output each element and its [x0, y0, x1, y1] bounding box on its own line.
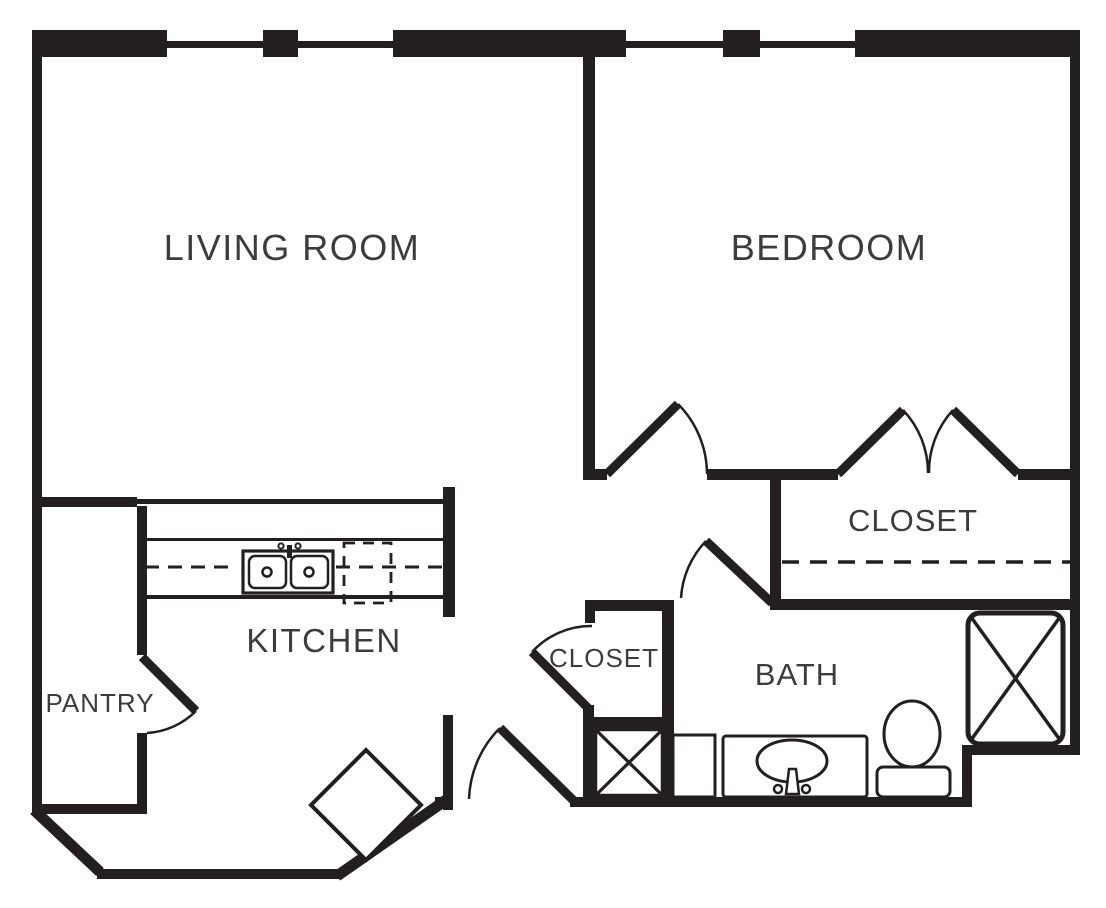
bath-label: BATH — [755, 657, 839, 692]
closet-double-door — [838, 410, 1018, 474]
entry-door-swing — [469, 728, 500, 799]
bedroom-south-wall — [707, 469, 838, 480]
left-wall — [32, 30, 42, 814]
top-wall-block — [32, 30, 167, 57]
counter-end-wall — [443, 487, 455, 617]
bay-diagonal-left — [34, 810, 100, 872]
floor-plan-page: LIVING ROOM BEDROOM CLOSET CLOSET KITCHE… — [0, 0, 1106, 908]
top-wall-block — [855, 30, 1080, 57]
living-bedroom-divider — [583, 57, 595, 469]
closet-door-right-swing — [929, 410, 953, 473]
entry-door-leaf — [500, 728, 574, 801]
window-icon — [167, 41, 263, 48]
utility-xbox-icon — [595, 729, 663, 796]
bath-counter — [673, 735, 715, 797]
kitchen-sink-icon — [243, 543, 333, 593]
closet-bottom-wall — [770, 599, 1080, 610]
window-icon — [626, 41, 723, 48]
closet-door-right-leaf — [953, 410, 1018, 474]
closet-door-left-swing — [903, 410, 928, 473]
linen-xbox-icon — [968, 613, 1063, 744]
top-wall-block — [393, 30, 626, 57]
counter-bottom-edge — [145, 595, 443, 599]
floor-plan-svg: LIVING ROOM BEDROOM CLOSET CLOSET KITCHE… — [0, 0, 1106, 908]
bedroom-south-wall — [1018, 469, 1080, 480]
bedroom-label: BEDROOM — [731, 227, 928, 268]
bath-door-swing — [681, 541, 706, 598]
closet-hall-divider — [770, 480, 781, 601]
bedroom-door-swing — [678, 404, 707, 474]
window-icon — [760, 41, 855, 48]
bath-door — [681, 541, 772, 603]
kitchen-label: KITCHEN — [246, 622, 401, 659]
bedroom-door-leaf — [607, 404, 678, 474]
pantry-right-wall — [137, 733, 147, 814]
bath-fixtures — [673, 701, 950, 797]
hall-closet-top-wall — [585, 600, 673, 611]
vanity-sink-icon — [723, 736, 867, 797]
pantry-bottom-wall — [32, 804, 147, 814]
counter-top-edge — [137, 499, 445, 504]
hall-closet-left-wall — [583, 705, 594, 807]
toilet-icon — [877, 701, 950, 797]
closet-door-left-leaf — [838, 410, 903, 474]
window-pier — [263, 30, 298, 57]
bay-bottom-wall — [97, 869, 340, 879]
kitchen-counter — [137, 499, 445, 603]
bedroom-south-wall — [583, 469, 607, 480]
dining-column-icon — [311, 750, 421, 860]
bedroom-door — [607, 404, 707, 474]
dishwasher-icon — [344, 543, 391, 603]
window-pier — [723, 30, 760, 57]
window-icon — [298, 41, 393, 48]
bedroom-closet-label: CLOSET — [848, 503, 978, 538]
counter-inner-line — [145, 538, 443, 541]
living-room-label: LIVING ROOM — [164, 227, 421, 268]
entry-door — [469, 728, 574, 801]
pantry-right-wall — [137, 506, 147, 655]
hall-closet-jamb-stub — [585, 600, 595, 623]
pantry-label: PANTRY — [45, 688, 154, 718]
entry-jamb-wall — [443, 715, 453, 810]
pantry-top-wall — [32, 497, 137, 507]
right-wall — [1070, 57, 1080, 755]
bath-door-leaf — [706, 541, 772, 603]
hall-closet-label: CLOSET — [549, 643, 659, 673]
